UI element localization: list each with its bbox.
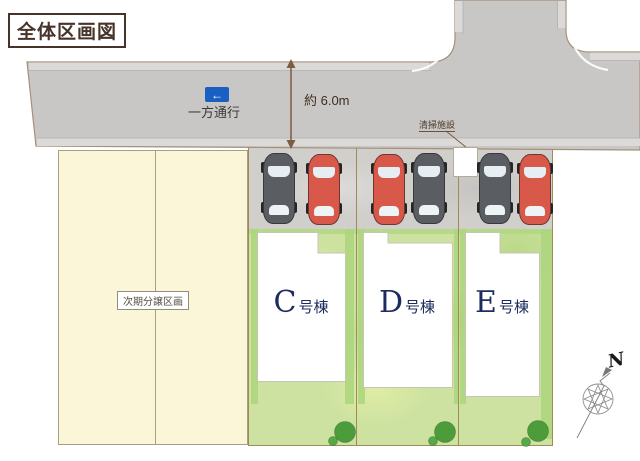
compass-north-label: N — [606, 349, 626, 373]
one-way-label: 一方通行 — [188, 102, 240, 121]
car-top-view — [477, 152, 513, 225]
road-corner-marking — [412, 24, 451, 71]
road-width-label: 約 6.0m — [304, 90, 350, 109]
road-width-arrow — [287, 59, 296, 149]
car-rear-window — [419, 205, 439, 215]
car-windshield — [378, 167, 400, 178]
car-rear-window — [269, 205, 289, 215]
car-windshield — [268, 166, 290, 177]
car-top-view — [517, 153, 553, 226]
car-rear-window — [485, 205, 505, 215]
car-body — [519, 154, 551, 225]
future-parcel-label: 次期分譲区画 — [117, 291, 189, 310]
side-yard-strip — [345, 229, 354, 404]
car-top-view — [306, 153, 342, 226]
cleaning-facility-label: 清掃施設 — [419, 120, 455, 132]
side-yard-strip — [251, 229, 258, 404]
building-letter: D — [379, 288, 403, 318]
car-top-view — [371, 153, 407, 226]
building-suffix: 号棟 — [405, 296, 435, 317]
car-body — [308, 154, 340, 225]
building-suffix: 号棟 — [499, 296, 529, 317]
car-body — [413, 153, 445, 224]
building-letter: E — [475, 288, 497, 318]
car-windshield — [484, 166, 506, 177]
building-letter: C — [274, 288, 297, 318]
car-windshield — [313, 167, 335, 178]
car-body — [479, 153, 511, 224]
car-top-view — [261, 152, 297, 225]
page-title: 全体区画図 — [8, 13, 126, 48]
one-way-sign: ← — [205, 87, 229, 102]
road-corner-marking — [569, 22, 608, 70]
car-body — [263, 153, 295, 224]
building-suffix: 号棟 — [298, 296, 328, 317]
building-d-label: D号棟 — [365, 288, 449, 318]
building-c-label: C号棟 — [259, 288, 343, 318]
car-body — [373, 154, 405, 225]
lot-boundary-c-d — [356, 148, 357, 445]
compass-rose-icon — [577, 367, 613, 438]
car-windshield — [418, 166, 440, 177]
future-parcel-area: 次期分譲区画 — [58, 150, 248, 445]
one-way-arrow-icon: ← — [211, 89, 223, 101]
car-windshield — [524, 167, 546, 178]
building-e-label: E号棟 — [460, 288, 544, 318]
car-top-view — [411, 152, 447, 225]
cleaning-facility-box — [453, 147, 478, 177]
grass-band — [249, 229, 552, 234]
car-rear-window — [525, 206, 545, 216]
lot-boundary-d-e — [458, 148, 459, 445]
facility-leader-line — [446, 131, 467, 148]
side-yard-strip — [358, 229, 365, 404]
car-rear-window — [379, 206, 399, 216]
car-rear-window — [314, 206, 334, 216]
site-plan-canvas: 全体区画図 次期分譲区画 清掃施設 ← 一方通行 約 6.0m C号棟 D号棟 … — [0, 0, 640, 461]
side-yard-strip — [541, 229, 553, 439]
